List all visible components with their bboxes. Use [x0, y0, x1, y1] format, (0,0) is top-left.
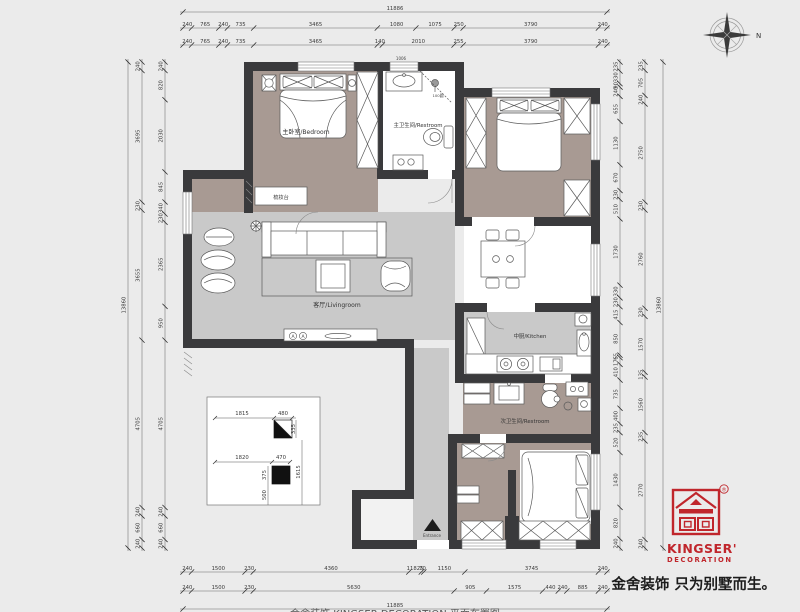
dim-label-right_mid-7: 1570 [639, 337, 645, 351]
coffee-table-icon [316, 260, 350, 292]
dim-label-right_inner-18: 400 [614, 410, 620, 421]
label-shower-note: 100圆 [432, 93, 443, 98]
detail-dim-335: 335 [291, 424, 297, 434]
dim-label-top_row1-6: 1075 [428, 22, 441, 28]
dimension-chain-left_inner: 240820203084534023023659504705240660240 [159, 59, 168, 551]
kitchen-corner-icon [575, 313, 591, 326]
detail-dim-470: 470 [276, 455, 287, 461]
dimension-chain-left_outer: 240369523036554705240660240 [136, 59, 145, 551]
dim-label-bottom_row2-6: 440 [545, 585, 556, 591]
dim-label-bottom_row2-2: 230 [244, 585, 255, 591]
dim-label-right_inner-20: 520 [614, 437, 620, 448]
dim-label-right_mid-11: 2770 [639, 483, 645, 497]
bed2-icon [497, 98, 561, 171]
dim-label-top_row1-0: 240 [182, 22, 193, 28]
dim-label-right_inner-8: 510 [614, 203, 620, 214]
dim-label-left_inner-9: 240 [159, 506, 165, 517]
dim-label-top_row2-8: 3790 [524, 39, 538, 45]
dim-label-left_inner-11: 240 [159, 538, 165, 549]
dim-label-bottom_row1-6: 1150 [438, 566, 452, 572]
dim-label-left_outer-0: 240 [136, 61, 142, 72]
toilet2-icon [542, 384, 561, 408]
dim-label-right_inner-13: 850 [614, 333, 620, 344]
dim-label-top_row2-9: 240 [598, 39, 609, 45]
tv-cabinet-icon [284, 329, 377, 341]
dim-label-right_mid-1: 705 [639, 78, 645, 88]
dimension-chain-right_mid: 2357052402750230276023015701351560235277… [639, 59, 648, 551]
dim-label-bottom_row2-4: 905 [465, 585, 475, 591]
dim-label-right_mid-4: 230 [639, 200, 645, 211]
dim-label-right_inner-10: 330 [614, 286, 620, 297]
dimension-chain-top_total: 11886 [180, 6, 610, 15]
dimension-chain-top_row2: 240765240735346514020102553790240 [180, 39, 610, 48]
armchair-icon [381, 261, 410, 291]
compass-north-label: N [756, 32, 761, 40]
dim-label-top_row2-5: 140 [375, 39, 386, 45]
dim-label-left_outer-3: 3655 [136, 268, 142, 281]
dimension-chain-right_total: 13860 [657, 59, 666, 551]
compass-icon [703, 12, 751, 58]
dim-label-bottom_row1-5: 70 [419, 566, 426, 572]
dim-label-top_row1-9: 240 [598, 22, 609, 28]
kitchen-counter-icon [466, 354, 591, 374]
dim-label-top_row2-1: 765 [200, 39, 210, 45]
dim-label-right_mid-10: 235 [639, 432, 645, 442]
bath2-vanity-icon [494, 383, 524, 404]
dim-label-bottom_row2-1: 1500 [212, 585, 226, 591]
dim-label-left_outer-2: 230 [136, 200, 142, 211]
dim-label-top_row2-0: 240 [182, 39, 193, 45]
dim-label-right_inner-4: 655 [614, 104, 620, 114]
dim-label-bottom_row1-7: 3745 [525, 566, 538, 572]
kitchen-sink-icon [577, 330, 591, 356]
logo-brand-text: KINGSER' [667, 541, 737, 556]
room-label-second-bath: 次卫生间/Restroom [500, 417, 549, 425]
dim-label-top_row2-6: 2010 [411, 39, 425, 45]
bed3-icon [522, 452, 590, 522]
dim-label-left_outer-5: 240 [136, 506, 142, 517]
dim-label-left_inner-1: 820 [159, 79, 165, 90]
dim-label-right_mid-2: 240 [639, 94, 645, 105]
dim-label-right_inner-12: 415 [614, 310, 620, 320]
dim-label-left_outer-7: 240 [136, 538, 142, 549]
dim-label-bottom_total-0: 11885 [387, 603, 404, 609]
dim-label-top_row1-5: 1080 [390, 22, 404, 28]
dim-label-left_inner-5: 230 [159, 212, 165, 223]
bath-cabinet-icon [393, 155, 423, 170]
dim-label-right_mid-12: 240 [639, 538, 645, 549]
dim-label-right_total-0: 13860 [657, 296, 663, 313]
detail-dim-375: 375 [262, 470, 268, 480]
label-bath-dim: 1006 [396, 56, 407, 61]
room-label-master-bedroom: 主卧室/Bedroom [282, 128, 329, 136]
dimension-chain-bottom_row1: 24015002304360118257011503745240 [180, 566, 610, 575]
dim-label-right_mid-3: 2750 [639, 146, 645, 160]
detail-dim-1820: 1820 [235, 455, 249, 461]
dim-label-bottom_row2-9: 240 [598, 585, 609, 591]
dim-label-left_inner-0: 240 [159, 61, 165, 72]
dim-label-left_inner-4: 340 [159, 202, 165, 213]
dim-label-top_total-0: 11886 [387, 6, 404, 12]
label-dresser: 梳妆台 [273, 193, 289, 201]
dim-label-right_mid-0: 235 [639, 61, 645, 71]
detail-dim-480: 480 [278, 411, 289, 417]
dim-label-bottom_row2-0: 240 [182, 585, 193, 591]
logo-registered-mark: ® [722, 487, 727, 494]
logo-tagline: 金舍装饰 只为别墅而生。 [610, 575, 776, 593]
dim-label-bottom_row2-8: 885 [578, 585, 588, 591]
dim-label-left_inner-10: 660 [159, 522, 165, 533]
dim-label-right_inner-9: 1730 [614, 245, 620, 259]
dim-label-top_row1-4: 3465 [309, 22, 322, 28]
dim-label-left_total-0: 13860 [122, 296, 128, 313]
dim-label-left_outer-4: 4705 [136, 417, 142, 430]
dim-label-top_row1-8: 3790 [524, 22, 538, 28]
dimension-chain-right_inner: 2353309024065511306702305101730330230415… [614, 59, 623, 551]
dim-label-bottom_row1-1: 1500 [212, 566, 226, 572]
detail-dim-500: 500 [262, 489, 268, 500]
dim-label-top_row2-7: 255 [454, 39, 464, 45]
dim-label-top_row1-3: 735 [235, 22, 245, 28]
bath-vanity-icon [386, 72, 422, 91]
dim-label-left_outer-6: 660 [136, 522, 142, 533]
detail-dim-1815: 1815 [235, 411, 248, 417]
dim-label-right_inner-22: 820 [614, 517, 620, 528]
dim-label-right_mid-9: 1560 [639, 397, 645, 411]
floorplan-drawing: A A 主卧室/Bedroom 主卫生间/Restroom 客厅/Livingr… [0, 0, 800, 612]
dim-label-right_inner-15: 175 [614, 356, 620, 366]
dim-label-left_inner-2: 2030 [159, 128, 165, 142]
lounge-chairs-icon [201, 228, 235, 293]
fridge-icon [467, 318, 485, 356]
detail-dim-1615: 1615 [296, 465, 302, 478]
dim-label-bottom_row1-3: 4360 [324, 566, 338, 572]
dim-label-top_row1-1: 765 [200, 22, 210, 28]
dim-label-left_inner-3: 845 [159, 182, 165, 192]
room-label-living: 客厅/Livingroom [313, 301, 361, 309]
label-entrance: Entrance [423, 533, 441, 538]
dim-label-left_inner-8: 4705 [159, 417, 165, 430]
dimension-chain-bottom_row2: 240150023056309051575440240885240 [180, 585, 610, 594]
dim-label-right_mid-5: 2760 [639, 252, 645, 266]
dim-label-right_mid-6: 230 [639, 307, 645, 318]
dim-label-top_row2-4: 3465 [309, 39, 322, 45]
dim-label-left_outer-1: 3695 [136, 130, 142, 143]
sofa-icon [262, 222, 386, 257]
dim-label-right_inner-5: 1130 [614, 136, 620, 150]
dim-label-bottom_row1-0: 240 [182, 566, 193, 572]
dim-label-top_row1-7: 250 [454, 22, 465, 28]
room-label-master-bath: 主卫生间/Restroom [393, 121, 442, 129]
dim-label-right_inner-1: 330 [614, 72, 620, 83]
logo-division-text: DECORATION [667, 556, 733, 564]
dim-label-top_row2-3: 735 [235, 39, 245, 45]
kingser-logo [673, 485, 728, 534]
dim-label-right_inner-17: 735 [614, 389, 620, 399]
dimension-chain-top_row1: 2407652407353465108010752503790240 [180, 22, 610, 31]
dim-label-top_row1-2: 240 [218, 22, 229, 28]
dim-label-bottom_row2-3: 5630 [347, 585, 361, 591]
dim-label-bottom_row1-8: 240 [598, 566, 609, 572]
dim-label-right_inner-16: 410 [614, 367, 620, 378]
dim-label-right_inner-21: 1430 [614, 473, 620, 487]
room-label-kitchen: 中厨/Kitchen [514, 332, 547, 340]
dim-label-top_row2-2: 240 [218, 39, 229, 45]
dim-label-right_mid-8: 135 [639, 370, 645, 380]
floorplan-canvas: A A 主卧室/Bedroom 主卫生间/Restroom 客厅/Livingr… [0, 0, 800, 612]
dimension-chain-left_total: 13860 [122, 59, 131, 551]
dim-label-left_inner-7: 950 [159, 318, 165, 329]
dim-label-right_inner-6: 670 [614, 172, 620, 183]
dim-label-bottom_row2-5: 1575 [508, 585, 521, 591]
wardrobe-master-icon [357, 72, 378, 168]
dim-label-bottom_row1-2: 230 [244, 566, 255, 572]
dim-label-left_inner-6: 2365 [159, 258, 165, 271]
column-detail-inset [207, 397, 320, 505]
dim-label-bottom_row2-7: 240 [558, 585, 569, 591]
